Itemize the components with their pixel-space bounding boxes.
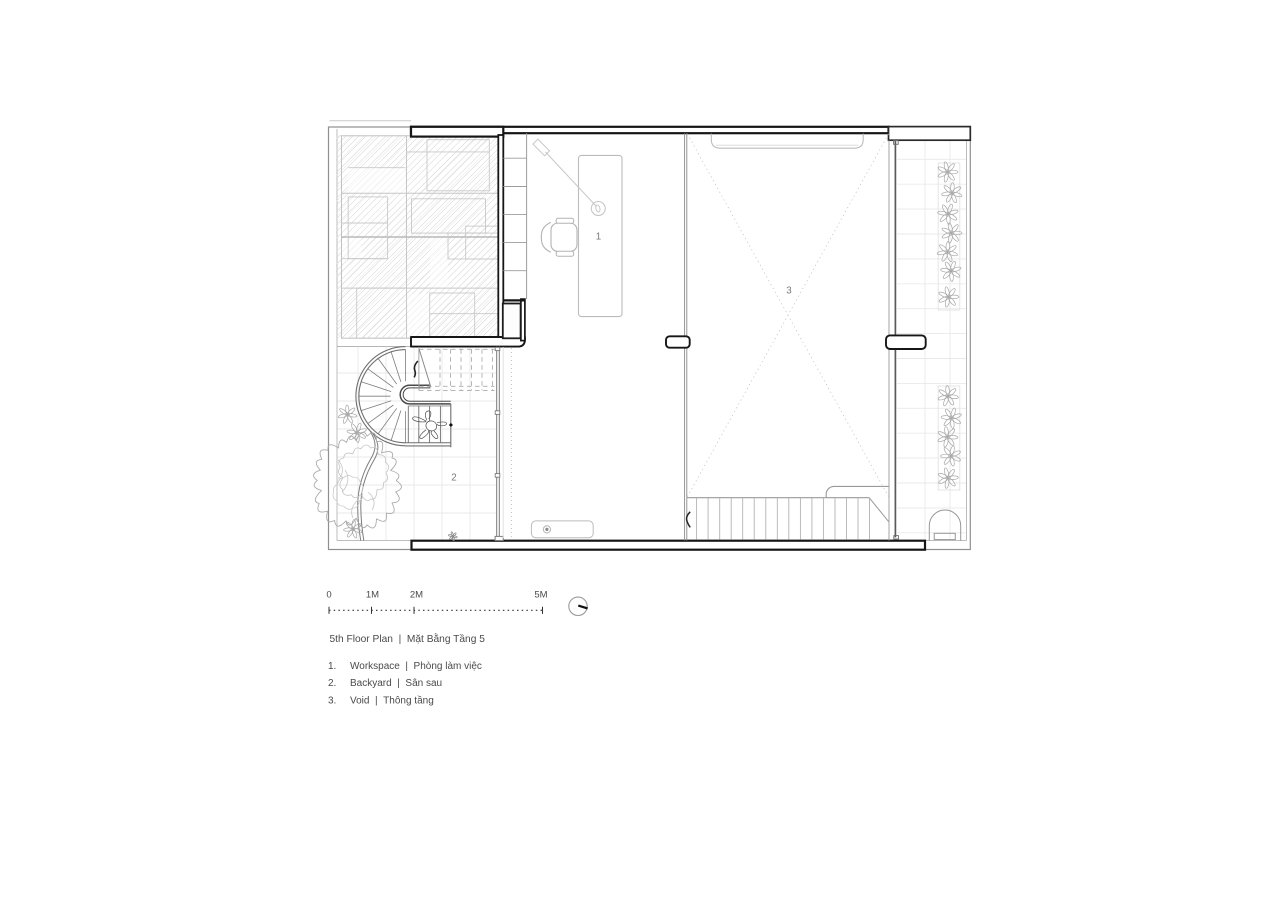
- svg-text:Void | Thông tầng: Void | Thông tầng: [350, 695, 434, 707]
- svg-text:2.: 2.: [328, 678, 336, 689]
- svg-text:1M: 1M: [366, 590, 379, 601]
- svg-text:1: 1: [596, 232, 601, 243]
- svg-text:3.: 3.: [328, 696, 336, 707]
- svg-text:Backyard | Sân sau: Backyard | Sân sau: [350, 678, 442, 689]
- svg-text:Workspace | Phòng làm việc: Workspace | Phòng làm việc: [350, 661, 482, 672]
- svg-text:3: 3: [786, 286, 792, 297]
- svg-text:5M: 5M: [534, 590, 547, 601]
- svg-text:2: 2: [451, 473, 456, 484]
- svg-text:2M: 2M: [410, 590, 423, 601]
- svg-text:1.: 1.: [328, 661, 336, 672]
- svg-text:0: 0: [326, 590, 331, 601]
- svg-text:5th Floor Plan | Mặt Bằng Tầ: 5th Floor Plan | Mặt Bằng Tầng 5: [330, 632, 486, 645]
